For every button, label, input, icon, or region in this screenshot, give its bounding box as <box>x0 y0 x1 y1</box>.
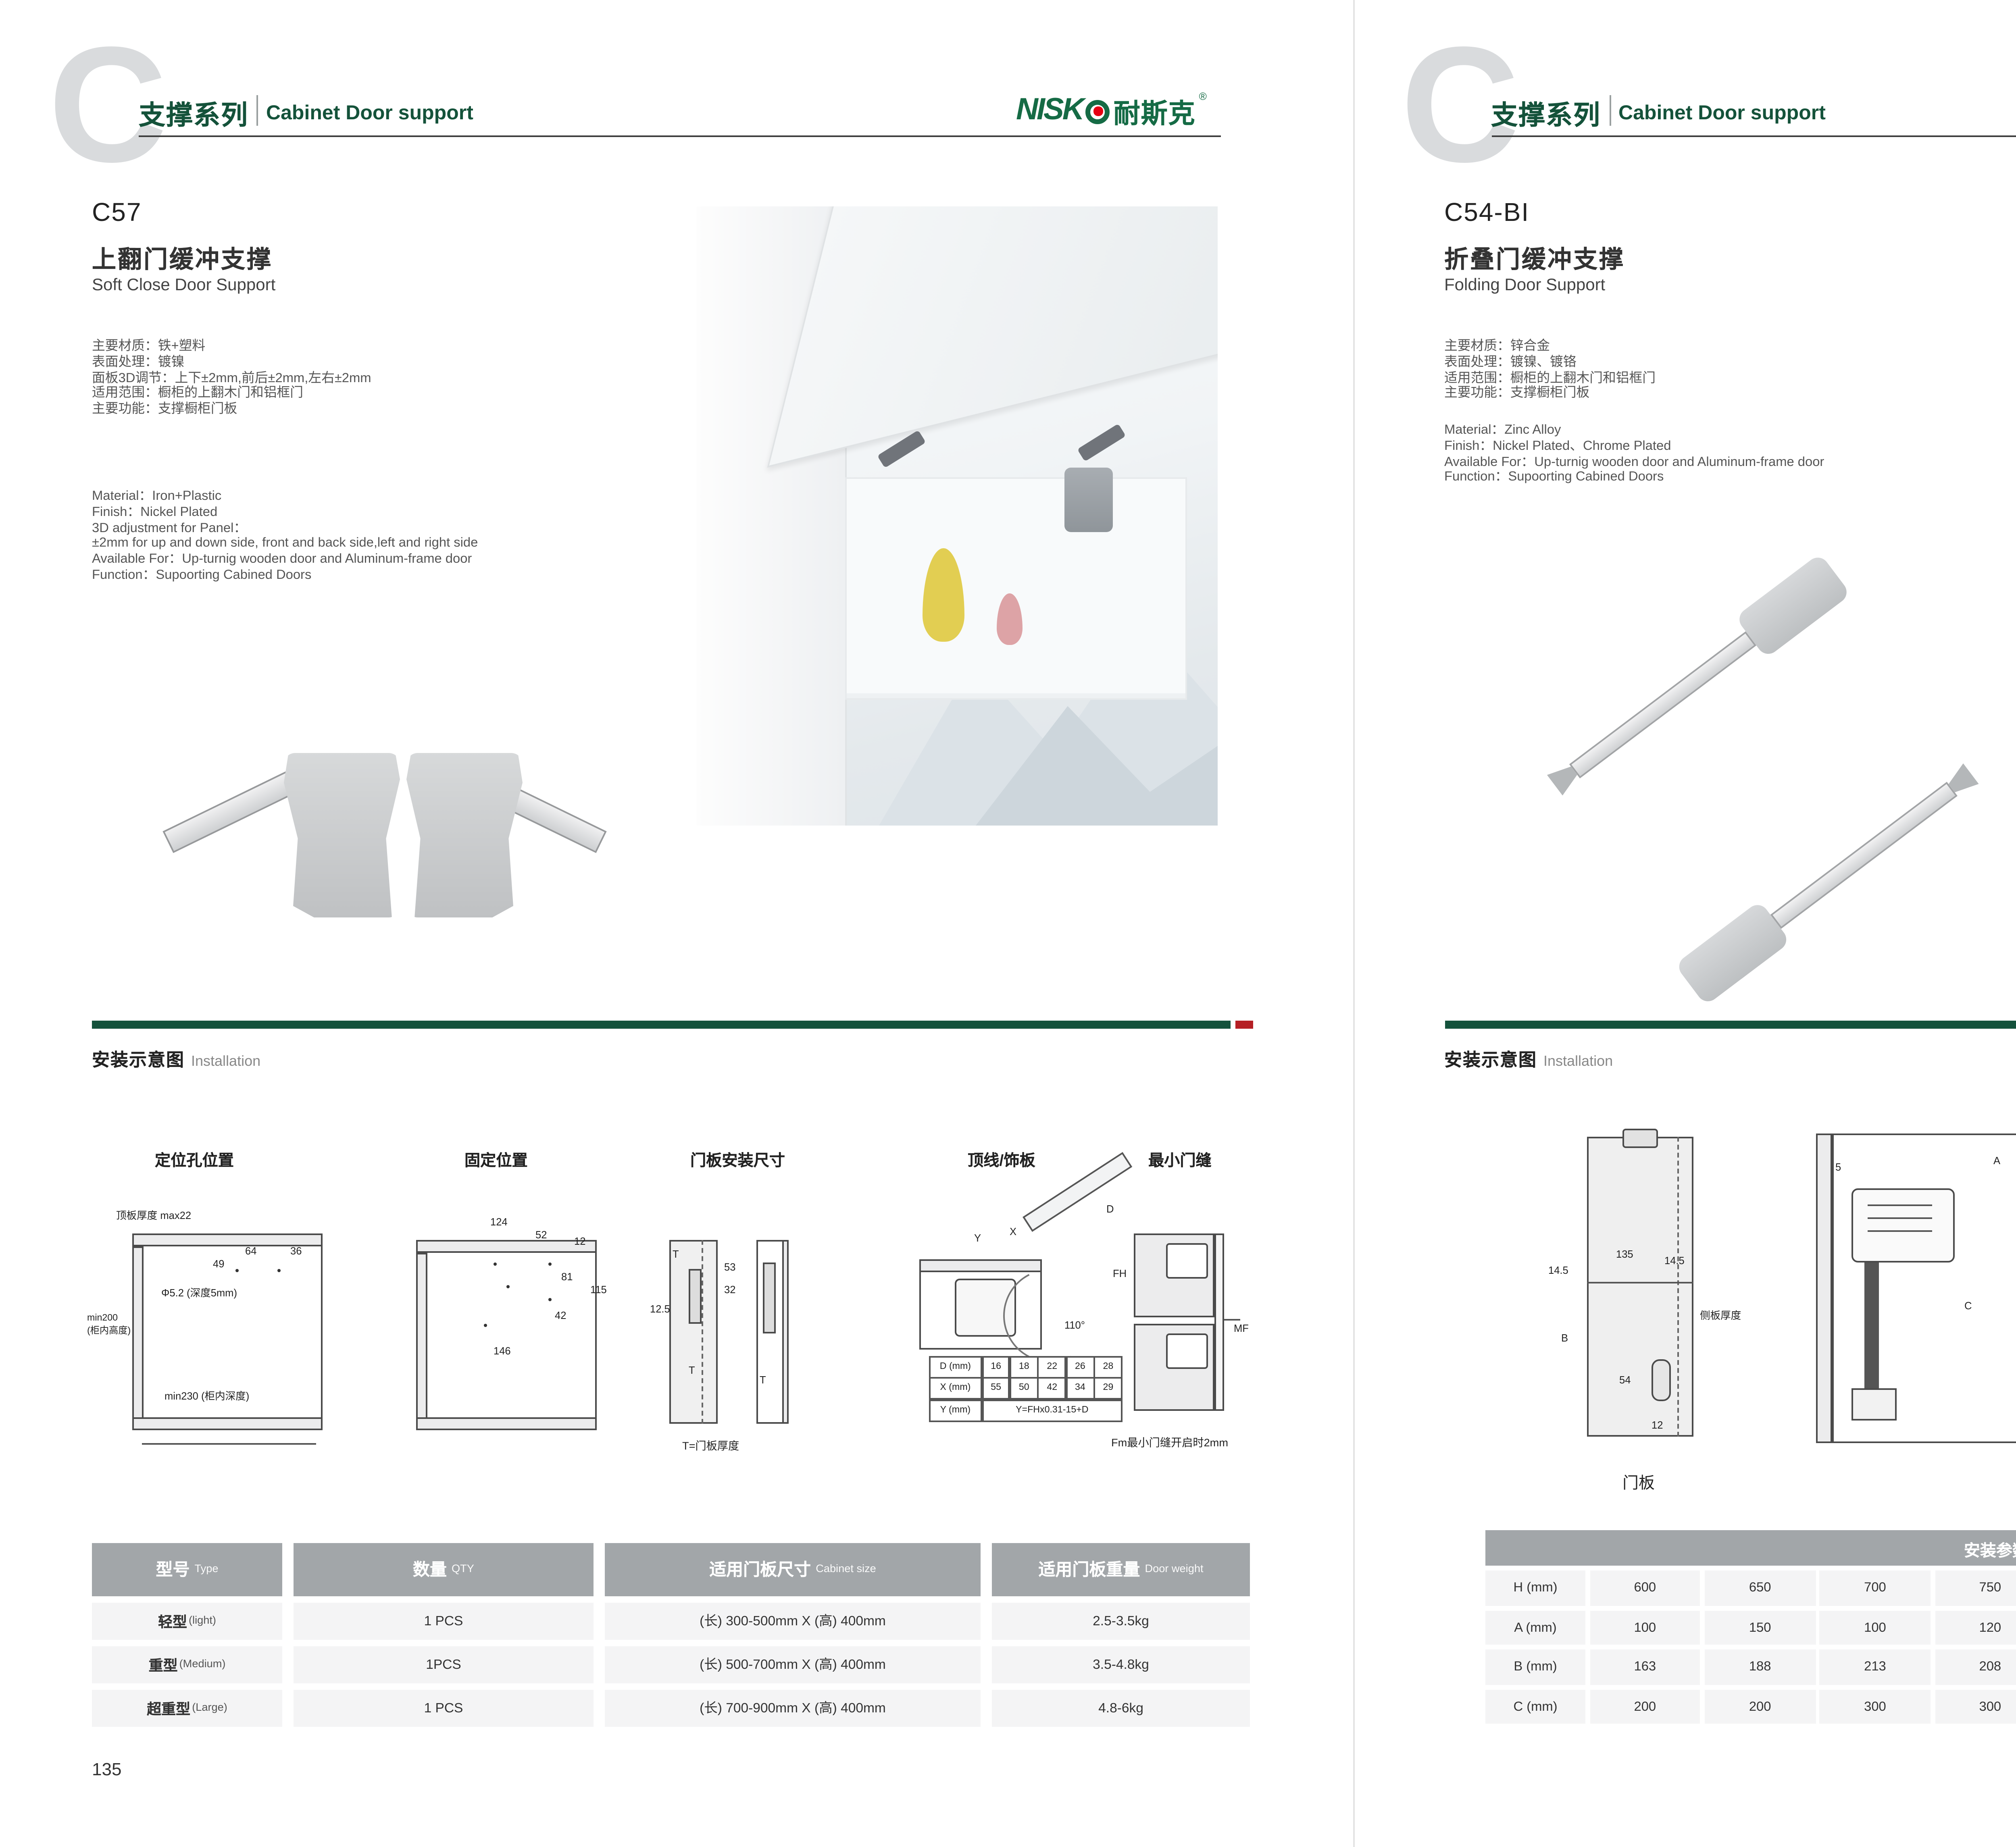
table-cell: 42 <box>1038 1378 1066 1400</box>
row-label: H (mm) <box>1485 1570 1585 1605</box>
hinge-icon <box>1652 1359 1671 1401</box>
dim-label: 146 <box>494 1346 511 1358</box>
table-cell: 超重型(Large) <box>92 1689 282 1727</box>
dim-label: 135 <box>1616 1250 1633 1261</box>
table-cell: 650 <box>1705 1570 1816 1605</box>
catalog-spread: C 支撑系列 Cabinet Door support NISK 耐斯克 ® C… <box>0 0 2016 1847</box>
arm-shaft <box>1770 781 1957 928</box>
dim-label: 52 <box>535 1230 547 1242</box>
dim-label: 115 <box>590 1285 607 1296</box>
damper-body <box>1166 1243 1208 1279</box>
spec-line: Finish：Nickel Plated <box>92 504 478 520</box>
table-cell: X (mm) <box>929 1378 982 1400</box>
diagram-caption: Fm最小门缝开启时2mm <box>1111 1433 1228 1450</box>
dim-label: min230 (柜内深度) <box>165 1391 249 1403</box>
dim-label: Y <box>974 1233 981 1245</box>
spec-line: ±2mm for up and down side, front and bac… <box>92 536 478 552</box>
page-136: C 支撑系列 Cabinet Door support NISK 耐斯克 ® C… <box>1352 0 2016 1847</box>
dim-label: 32 <box>724 1285 735 1296</box>
folding-arm <box>1674 753 1986 1006</box>
diagram-title: 最小门缝 <box>1148 1148 1212 1171</box>
dim-label: 14.5 <box>1548 1266 1568 1277</box>
dim-label: 42 <box>555 1311 566 1322</box>
table-row: H (mm) 600 650 700 750 800 850 900 950 1… <box>1485 1570 2016 1605</box>
dim-label: MF <box>1234 1324 1249 1335</box>
hole-mark <box>277 1269 281 1272</box>
drawing-shape <box>416 1240 597 1253</box>
specs-cn: 主要材质：铁+塑料 表面处理：镀镍 面板3D调节：上下±2mm,前后±2mm,左… <box>92 339 371 418</box>
dim-label: A <box>1993 1156 2000 1167</box>
spec-line: 适用范围：橱柜的上翻木门和铝框门 <box>92 386 371 402</box>
drawing-shape <box>1677 1137 1679 1437</box>
open-door-panel <box>767 206 1218 468</box>
dim-label: T <box>689 1366 695 1377</box>
table-row: 轻型(light) 1 PCS (长) 300-500mm X (高) 400m… <box>92 1602 1250 1640</box>
page-gutter <box>1352 0 1354 1847</box>
diagram-positioning-holes: 顶板厚度 max22 49 64 36 Φ5.2 (深度5mm) min200 … <box>110 1185 352 1467</box>
dim-label: 顶板厚度 max22 <box>116 1211 191 1222</box>
damper-body <box>1166 1333 1208 1369</box>
table-row: 超重型(Large) 1 PCS (长) 700-900mm X (高) 400… <box>92 1689 1250 1727</box>
spec-line: Material：Iron+Plastic <box>92 489 478 504</box>
header-divider <box>256 95 258 126</box>
drawing-shape <box>1587 1282 1693 1284</box>
logo-target-icon <box>1086 99 1110 123</box>
page-135: C 支撑系列 Cabinet Door support NISK 耐斯克 ® C… <box>0 0 1352 1847</box>
diagram-crown-trim: Y X D FH 110° D (mm) 16 18 22 26 28 X (m… <box>890 1185 1156 1467</box>
dim-label: 81 <box>561 1272 573 1283</box>
dim-label: X <box>1010 1227 1016 1238</box>
table-cell: 1 PCS <box>294 1689 594 1727</box>
table-cell: 700 <box>1820 1570 1931 1605</box>
spec-line: 表面处理：镀镍 <box>92 354 371 370</box>
table-cell: 1 PCS <box>294 1602 594 1640</box>
dim-label: 12.5 <box>650 1304 670 1316</box>
dim-label: T <box>673 1250 679 1261</box>
spec-line: Finish：Nickel Plated、Chrome Plated <box>1444 438 1824 454</box>
row-label: A (mm) <box>1485 1610 1585 1645</box>
table-cell: 16 <box>982 1356 1010 1378</box>
logo-dot-icon <box>1094 107 1103 116</box>
table-cell: 300 <box>1820 1689 1931 1724</box>
dim-label: min200 <box>87 1314 118 1325</box>
folding-arm <box>1539 553 1851 806</box>
spec-line: Available For：Up-turnig wooden door and … <box>92 552 478 568</box>
spec-line: Material：Zinc Alloy <box>1444 422 1824 438</box>
diagram-fixed-position: 124 52 12 81 115 42 146 <box>400 1185 626 1467</box>
dimension-line <box>142 1443 316 1444</box>
arm-shaft <box>1569 631 1756 778</box>
header-divider <box>1609 95 1610 126</box>
dim-label: C <box>1964 1301 1972 1312</box>
header-rule <box>1491 135 2016 138</box>
table-row: 重型(Medium) 1PCS (长) 500-700mm X (高) 400m… <box>92 1645 1250 1683</box>
series-title-cn: 支撑系列 <box>139 94 248 132</box>
section-divider-green <box>92 1021 1231 1029</box>
table-row: C (mm) 200 200 300 300 300 300 350 350 4… <box>1485 1689 2016 1724</box>
table-cell: 208 <box>1935 1649 2016 1684</box>
drawing-shape <box>416 1240 597 1430</box>
dim-label: 53 <box>724 1263 735 1274</box>
diagram-min-gap: MF Fm最小门缝开启时2mm <box>1121 1185 1266 1467</box>
diagram-door-panel: 135 14.5 14.5 B 侧板厚度 54 12 门板 <box>1561 1121 1731 1500</box>
diagram-caption: 门板 <box>1622 1469 1655 1493</box>
dim-label: (柜内高度) <box>87 1327 131 1337</box>
diagram-title: 定位孔位置 <box>155 1148 234 1171</box>
spec-table: 型号Type 数量QTY 适用门板尺寸Cabinet size 适用门板重量Do… <box>92 1543 1250 1727</box>
hole-mark <box>506 1285 510 1288</box>
dim-label: D <box>1106 1204 1114 1216</box>
crown-trim-table: D (mm) 16 18 22 26 28 X (mm) 55 50 42 34… <box>929 1356 1123 1422</box>
dim-label: B <box>1561 1333 1568 1345</box>
spec-line: Function：Supoorting Cabined Doors <box>1444 470 1824 486</box>
dim-label: T <box>760 1375 766 1387</box>
dim-label: 36 <box>290 1246 302 1258</box>
table-cell: 29 <box>1094 1378 1123 1400</box>
header-cell: 数量QTY <box>294 1543 594 1596</box>
table-cell: 轻型(light) <box>92 1602 282 1640</box>
table-cell: 28 <box>1094 1356 1123 1378</box>
product-title-cn: 上翻门缓冲支撑 <box>92 242 273 276</box>
specs-cn: 主要材质：锌合金 表面处理：镀镍、镀铬 适用范围：橱柜的上翻木门和铝框门 主要功… <box>1444 339 1656 402</box>
logo-cn: 耐斯克 <box>1114 92 1196 131</box>
table-cell: (长) 300-500mm X (高) 400mm <box>605 1602 981 1640</box>
table-row: B (mm) 163 188 213 208 263 288 263 288 3… <box>1485 1649 2016 1684</box>
table-cell: Y (mm) <box>929 1400 982 1422</box>
arm-bracket <box>1851 1388 1897 1421</box>
diagram-title: 门板安装尺寸 <box>690 1148 785 1171</box>
spec-line: 主要功能：支撑橱柜门板 <box>1444 386 1656 402</box>
product-title-cn: 折叠门缓冲支撑 <box>1444 242 1625 276</box>
spec-line: 主要功能：支撑橱柜门板 <box>92 402 371 418</box>
drawing-shape <box>416 1417 597 1430</box>
spec-line: 表面处理：镀镍、镀铬 <box>1444 354 1656 370</box>
diagram-title: 顶线/饰板 <box>968 1148 1035 1171</box>
dim-label: 侧板厚度 <box>1700 1311 1741 1322</box>
dim-label: 12 <box>1652 1421 1663 1432</box>
table-cell: 750 <box>1935 1570 2016 1605</box>
vent-slot <box>1868 1230 1932 1232</box>
table-cell: 163 <box>1589 1649 1700 1684</box>
diagram-title: 固定位置 <box>464 1148 528 1171</box>
logo-text: NISK <box>1016 94 1083 129</box>
table-cell: 300 <box>1935 1689 2016 1724</box>
vent-slot <box>1868 1217 1932 1219</box>
product-photo-cabinet <box>697 206 1218 826</box>
drawing-shape <box>132 1417 323 1430</box>
table-cell: 120 <box>1935 1610 2016 1645</box>
gap-mark <box>1224 1319 1240 1321</box>
product-title-en: Folding Door Support <box>1444 276 1605 295</box>
spec-line: 面板3D调节：上下±2mm,前后±2mm,左右±2mm <box>92 370 371 386</box>
installation-cn: 安装示意图 <box>1444 1046 1537 1072</box>
hole-mark <box>484 1324 487 1327</box>
series-title-cn: 支撑系列 <box>1491 94 1601 132</box>
table-row: A (mm) 100 150 100 120 200 250 200 250 2… <box>1485 1610 2016 1645</box>
table-cell: Y=FHx0.31-15+D <box>982 1400 1123 1422</box>
drawing-shape <box>132 1246 144 1430</box>
specs-en: Material：Zinc Alloy Finish：Nickel Plated… <box>1444 422 1824 486</box>
drawing-shape <box>782 1240 789 1424</box>
dim-label: 49 <box>213 1259 224 1271</box>
dim-label: 12 <box>574 1237 585 1248</box>
table-cell: 4.8-6kg <box>992 1689 1250 1727</box>
table-cell: 重型(Medium) <box>92 1645 282 1683</box>
hole-mark <box>235 1269 239 1272</box>
table-cell: 3.5-4.8kg <box>992 1645 1250 1683</box>
spec-line: 主要材质：锌合金 <box>1444 339 1656 354</box>
mounting-plate <box>689 1269 702 1324</box>
table-cell: 150 <box>1705 1610 1816 1645</box>
drawing-shape <box>1816 1134 1832 1443</box>
diagram-caption: T=门板厚度 <box>682 1437 739 1453</box>
table-cell: 600 <box>1589 1570 1700 1605</box>
table-cell: D (mm) <box>929 1356 982 1378</box>
installation-en: Installation <box>191 1053 260 1069</box>
drawing-shape <box>132 1233 323 1246</box>
table-cell: (长) 500-700mm X (高) 400mm <box>605 1645 981 1683</box>
hardware-image <box>129 734 637 924</box>
row-label: C (mm) <box>1485 1689 1585 1724</box>
section-divider-green <box>1444 1021 2016 1029</box>
table-cell: 2.5-3.5kg <box>992 1602 1250 1640</box>
drawing-shape <box>702 1240 703 1424</box>
table-cell: 18 <box>1010 1356 1038 1378</box>
header-cell: 适用门板尺寸Cabinet size <box>605 1543 981 1596</box>
series-title-en: Cabinet Door support <box>1618 102 1826 124</box>
hole-mark <box>548 1263 552 1266</box>
dim-label: 5 <box>1835 1163 1841 1174</box>
registered-mark: ® <box>1199 92 1207 103</box>
product-title-en: Soft Close Door Support <box>92 276 275 295</box>
spec-line: 适用范围：橱柜的上翻木门和铝框门 <box>1444 370 1656 386</box>
reference-table: 安装参数 Reference Data H (mm) 600 650 700 7… <box>1485 1530 2016 1724</box>
damper-unit <box>1064 468 1113 532</box>
hole-mark <box>548 1298 552 1301</box>
specs-en: Material：Iron+Plastic Finish：Nickel Plat… <box>92 489 478 583</box>
header-rule <box>139 135 1221 138</box>
table-cell: 26 <box>1066 1356 1095 1378</box>
dim-label: 54 <box>1619 1375 1631 1387</box>
mounting-plate <box>763 1263 776 1333</box>
dim-label: 110° <box>1064 1321 1085 1332</box>
page-number: 135 <box>92 1761 121 1780</box>
drawing-shape <box>416 1253 427 1430</box>
header-cell: 适用门板重量Door weight <box>992 1543 1250 1596</box>
table-cell: 34 <box>1066 1378 1095 1400</box>
spec-line: 主要材质：铁+塑料 <box>92 339 371 354</box>
open-door-line <box>1023 1152 1132 1232</box>
table-cell: (长) 700-900mm X (高) 400mm <box>605 1689 981 1727</box>
installation-en: Installation <box>1543 1053 1613 1069</box>
hole-mark <box>494 1263 497 1266</box>
table-cell: 22 <box>1038 1356 1066 1378</box>
brand-logo: NISK 耐斯克 ® <box>1016 92 1207 131</box>
section-divider-red <box>1235 1021 1253 1029</box>
table-cell: 200 <box>1589 1689 1700 1724</box>
table-cell: 50 <box>1010 1378 1038 1400</box>
plastic-cover-right <box>406 753 523 917</box>
table-cell: 200 <box>1705 1689 1816 1724</box>
hardware-image <box>1548 621 2016 992</box>
installation-heading: 安装示意图 Installation <box>1444 1046 1613 1072</box>
vent-slot <box>1868 1204 1932 1206</box>
spec-line: Function：Supoorting Cabined Doors <box>92 568 478 583</box>
spec-table-header: 型号Type 数量QTY 适用门板尺寸Cabinet size 适用门板重量Do… <box>92 1543 1250 1596</box>
table-cell: 55 <box>982 1378 1010 1400</box>
series-title-en: Cabinet Door support <box>266 102 473 124</box>
header-cell: 型号Type <box>92 1543 282 1596</box>
product-code: C54-BI <box>1444 200 1529 229</box>
table-cell: 213 <box>1820 1649 1931 1684</box>
drawing-shape <box>669 1240 718 1424</box>
plastic-cover-left <box>284 753 400 917</box>
dim-label: 64 <box>245 1246 256 1258</box>
installation-heading: 安装示意图 Installation <box>92 1046 260 1072</box>
drawing-shape <box>919 1259 1042 1272</box>
cabinet-interior <box>845 477 1187 700</box>
damper-body <box>1851 1188 1955 1263</box>
drawing-shape <box>1214 1233 1224 1411</box>
hinge-arm <box>1077 424 1126 462</box>
dim-label: Φ5.2 (深度5mm) <box>161 1288 237 1300</box>
dim-label: 14.5 <box>1664 1256 1685 1267</box>
table-cell: 188 <box>1705 1649 1816 1684</box>
installation-cn: 安装示意图 <box>92 1046 185 1072</box>
diagram-side-section: 5 A 19 C <box>1803 1121 2016 1467</box>
table-cell: 100 <box>1820 1610 1931 1645</box>
table-cell: 1PCS <box>294 1645 594 1683</box>
product-code: C57 <box>92 200 142 229</box>
diagram-door-mounting: T 53 32 12.5 T T T=门板厚度 <box>653 1185 887 1467</box>
spec-line: 3D adjustment for Panel： <box>92 520 478 536</box>
spec-line: Available For：Up-turnig wooden door and … <box>1444 454 1824 470</box>
hinge-icon <box>1622 1129 1658 1148</box>
arm-shaft <box>1864 1263 1879 1388</box>
table-cell: 100 <box>1589 1610 1700 1645</box>
dim-label: 124 <box>490 1217 508 1229</box>
reference-table-header: 安装参数 Reference Data <box>1485 1530 2016 1566</box>
header-cn: 安装参数 <box>1964 1536 2016 1560</box>
row-label: B (mm) <box>1485 1649 1585 1684</box>
